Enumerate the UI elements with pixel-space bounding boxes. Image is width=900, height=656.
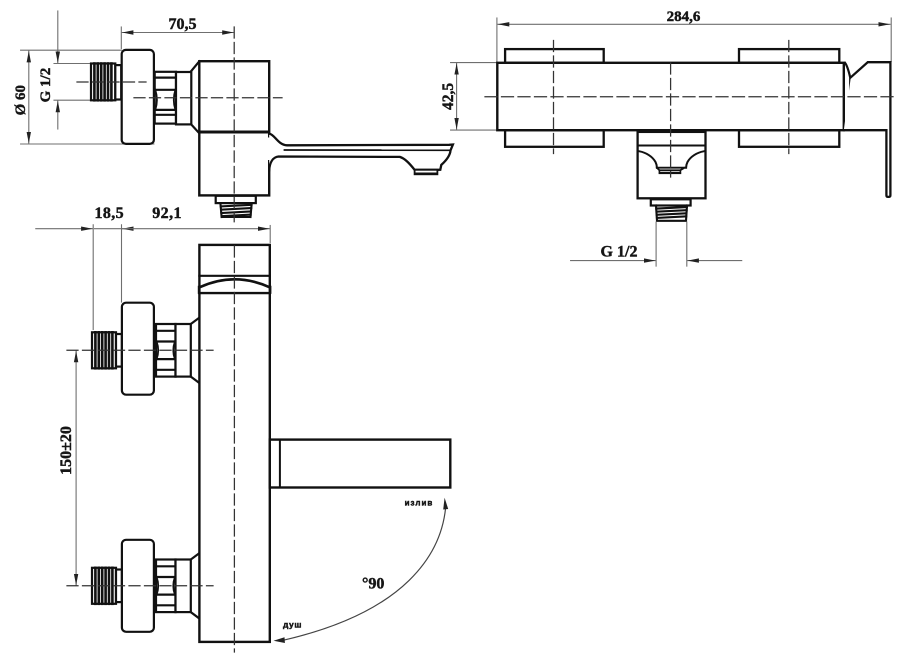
svg-text:70,5: 70,5 — [169, 16, 197, 33]
svg-text:G 1/2: G 1/2 — [601, 244, 638, 261]
svg-text:°90: °90 — [362, 576, 384, 593]
svg-text:Ø 60: Ø 60 — [13, 85, 29, 115]
svg-text:G 1/2: G 1/2 — [38, 68, 54, 103]
svg-text:150±20: 150±20 — [58, 426, 75, 475]
svg-text:18,5: 18,5 — [94, 205, 124, 222]
svg-text:душ: душ — [283, 620, 302, 630]
svg-text:284,6: 284,6 — [667, 9, 701, 25]
svg-text:излив: излив — [405, 499, 434, 508]
svg-text:92,1: 92,1 — [152, 205, 182, 222]
svg-text:42,5: 42,5 — [440, 83, 457, 110]
